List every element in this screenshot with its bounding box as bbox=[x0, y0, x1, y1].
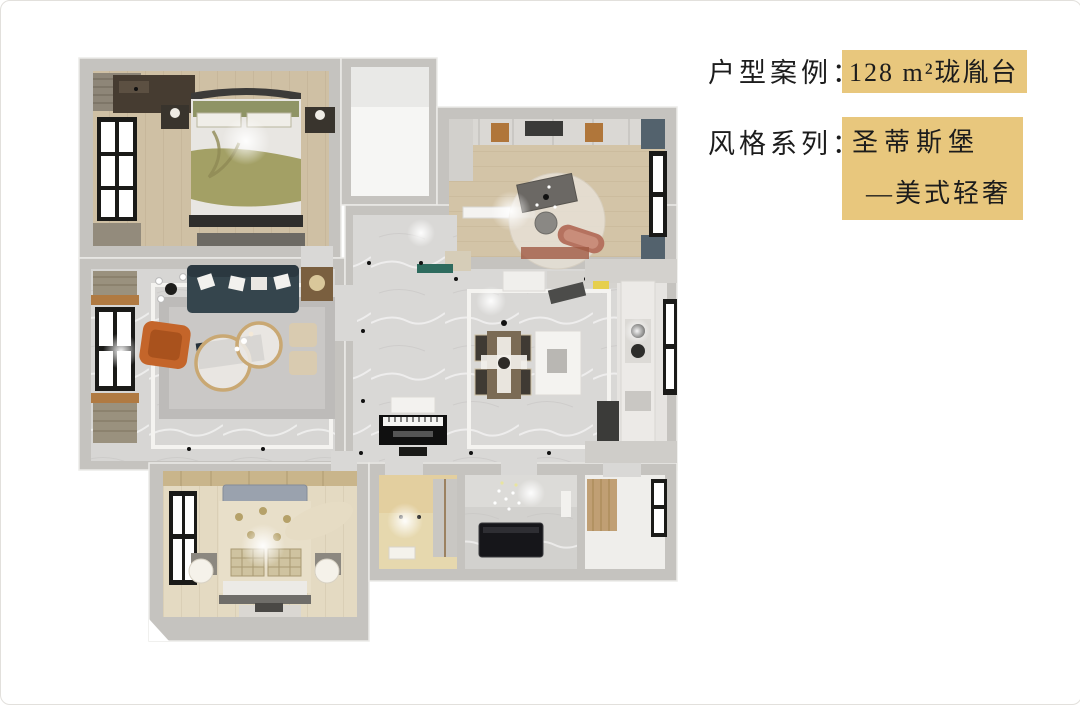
towel bbox=[561, 491, 571, 517]
floor-mat bbox=[389, 547, 415, 559]
kitchen-top-cabinets bbox=[585, 259, 677, 283]
sill-bottom bbox=[91, 393, 139, 403]
style-value-highlight: 圣蒂斯堡 —美式轻奢 bbox=[842, 117, 1023, 220]
arc-lamp bbox=[165, 283, 177, 295]
accent-rug bbox=[521, 247, 589, 259]
bed-frame bbox=[189, 215, 303, 227]
piano-bench bbox=[399, 447, 427, 456]
floorplan-render bbox=[1, 1, 1080, 704]
mattress-foot bbox=[223, 581, 307, 597]
sink bbox=[625, 391, 651, 411]
case-value-highlight: 128 m²珑胤台 bbox=[842, 50, 1027, 93]
coffee-table-ring-small bbox=[237, 323, 281, 367]
style-series-subtitle: —美式轻奢 bbox=[852, 173, 1011, 210]
sofa bbox=[187, 265, 299, 313]
yellow-dish bbox=[593, 281, 609, 289]
foot-bench bbox=[197, 233, 305, 246]
sill-top bbox=[91, 295, 139, 305]
ottoman-1 bbox=[289, 323, 317, 347]
curtain-bottom bbox=[641, 235, 665, 259]
drum-lamp-left bbox=[189, 559, 213, 583]
wall-art bbox=[417, 264, 453, 273]
blinds-bottom bbox=[93, 223, 141, 246]
drum-lamp-right bbox=[315, 559, 339, 583]
style-series-name: 圣蒂斯堡 bbox=[852, 122, 1011, 159]
style-label: 风格系列： bbox=[708, 122, 863, 161]
console-cabinet bbox=[391, 397, 435, 413]
bed-base bbox=[219, 595, 311, 604]
kitchen-counter bbox=[621, 281, 655, 461]
tall-appliance bbox=[597, 401, 619, 447]
ottoman-2 bbox=[289, 351, 317, 375]
shelf-accent-right bbox=[585, 123, 603, 142]
wood-feature-wall bbox=[163, 471, 357, 486]
kitchen-island bbox=[535, 331, 581, 395]
pendant-light bbox=[543, 194, 549, 200]
kitchen-bottom-cabinets bbox=[585, 441, 677, 463]
shoe-cabinet bbox=[503, 271, 545, 291]
shelf-accent-left bbox=[491, 123, 509, 142]
case-label: 户型案例： bbox=[708, 51, 863, 90]
door-bathroom bbox=[501, 451, 537, 477]
curtain-top bbox=[641, 119, 665, 149]
page-canvas: 户型案例： 128 m²珑胤台 风格系列： 圣蒂斯堡 —美式轻奢 bbox=[0, 0, 1080, 705]
side-wardrobe bbox=[449, 119, 473, 181]
desk-chair bbox=[535, 212, 557, 234]
dining-pendant bbox=[501, 320, 507, 326]
door-living-room bbox=[333, 285, 357, 341]
balcony-wood-panel bbox=[587, 479, 617, 531]
